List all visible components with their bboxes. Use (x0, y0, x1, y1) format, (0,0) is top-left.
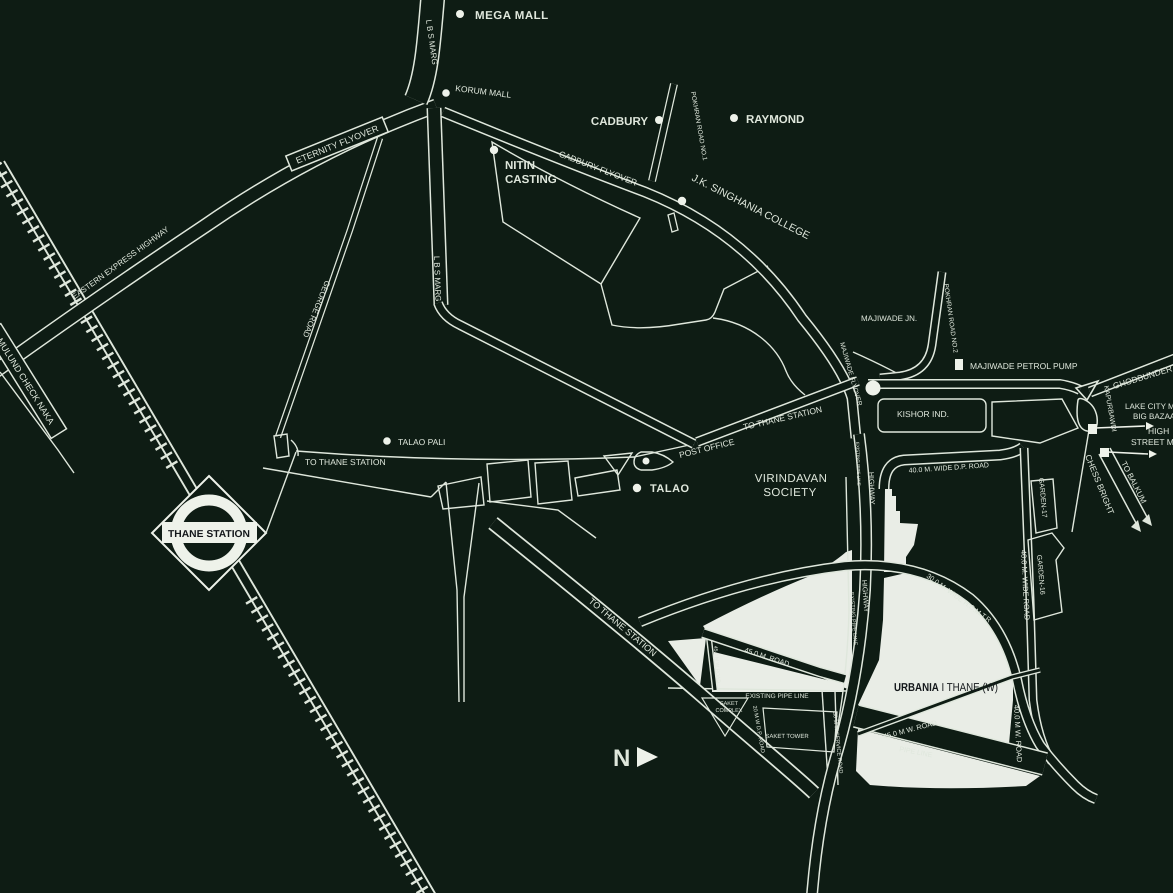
svg-text:URBANIA I THANE (W): URBANIA I THANE (W) (894, 682, 998, 694)
svg-text:EXISTING PIPE LINE: EXISTING PIPE LINE (745, 693, 809, 700)
svg-text:N: N (613, 745, 630, 772)
svg-text:SAKET: SAKET (720, 701, 739, 707)
svg-text:TO THANE STATION: TO THANE STATION (305, 457, 386, 467)
svg-text:KISHOR IND.: KISHOR IND. (897, 409, 949, 419)
svg-text:HIGHWAY: HIGHWAY (867, 472, 875, 505)
svg-text:NITIN: NITIN (505, 160, 535, 172)
svg-text:CADBURY: CADBURY (591, 116, 648, 128)
svg-text:CASTING: CASTING (505, 174, 557, 186)
svg-text:SOCIETY: SOCIETY (763, 487, 816, 499)
svg-text:TALAO: TALAO (650, 483, 690, 495)
svg-text:LAKE CITY MALL: LAKE CITY MALL (1125, 402, 1173, 411)
svg-text:MAJIWADE JN.: MAJIWADE JN. (861, 314, 917, 323)
svg-text:MEGA MALL: MEGA MALL (475, 10, 549, 22)
svg-text:L B S MARG: L B S MARG (432, 256, 443, 302)
svg-text:RAYMOND: RAYMOND (746, 114, 804, 126)
svg-text:SAKET TOWER: SAKET TOWER (765, 733, 809, 740)
svg-text:STREET MALL: STREET MALL (1131, 437, 1173, 447)
svg-text:VIRINDAVAN: VIRINDAVAN (755, 473, 828, 485)
svg-text:HIGH: HIGH (1148, 426, 1169, 436)
svg-text:COMPLEX: COMPLEX (716, 708, 743, 714)
svg-text:MAJIWADE PETROL PUMP: MAJIWADE PETROL PUMP (970, 361, 1078, 371)
svg-text:TALAO PALI: TALAO PALI (398, 437, 445, 447)
svg-text:THANE STATION: THANE STATION (168, 529, 250, 540)
svg-text:BIG BAZAAR: BIG BAZAAR (1133, 412, 1173, 421)
